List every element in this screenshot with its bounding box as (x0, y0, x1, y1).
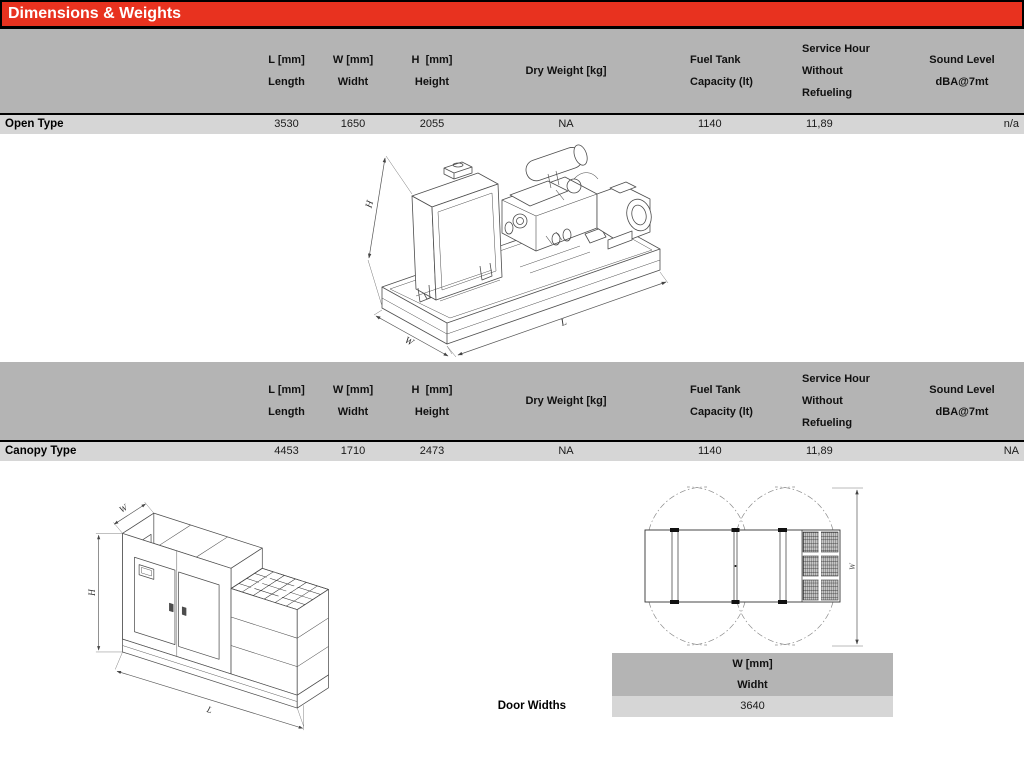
open-service-hour: 11,89 (790, 115, 900, 134)
header-blank (0, 29, 253, 113)
header-height: H [mm]Height (386, 29, 478, 113)
door-widths-label: Door Widths (420, 696, 566, 717)
open-width: 1650 (320, 115, 386, 134)
header-length: L [mm]Length (253, 362, 320, 440)
header-service-hour: Service HourWithoutRefueling (790, 362, 900, 440)
canopy-fuel-tank: 1140 (654, 442, 790, 461)
canopy-type-drawing: H W L (72, 478, 334, 734)
header-dry-weight: Dry Weight [kg] (478, 29, 654, 113)
canopy-width: 1710 (320, 442, 386, 461)
header-service-hour: Service HourWithoutRefueling (790, 29, 900, 113)
header-height: H [mm]Height (386, 362, 478, 440)
canopy-dry-weight: NA (478, 442, 654, 461)
open-type-drawing: H L W (360, 138, 680, 362)
dim-label-h: H (363, 199, 376, 211)
section-title-bar: Dimensions & Weights (0, 0, 1024, 29)
dim-label-l: L (205, 704, 214, 715)
canopy-length: 4453 (253, 442, 320, 461)
header-fuel-tank: Fuel TankCapacity (lt) (654, 29, 790, 113)
door-widths-value: 3640 (612, 696, 893, 717)
header-fuel-tank: Fuel TankCapacity (lt) (654, 362, 790, 440)
dimensions-weights-sheet: Dimensions & Weights L [mm]Length W [mm]… (0, 0, 1024, 776)
row-label: Open Type (0, 115, 253, 134)
table-row-open-type: Open Type 3530 1650 2055 NA 1140 11,89 n… (0, 115, 1024, 134)
header-dry-weight: Dry Weight [kg] (478, 362, 654, 440)
header-blank (0, 362, 253, 440)
dim-label-w: W (848, 562, 857, 570)
door-swing-plan-drawing: W (635, 482, 880, 662)
open-sound-level: n/a (900, 115, 1024, 134)
open-type-table-header: L [mm]Length W [mm]Widht H [mm]Height Dr… (0, 29, 1024, 113)
door-widths-header: W [mm] Widht (612, 653, 893, 696)
open-height: 2055 (386, 115, 478, 134)
header-width: W [mm]Widht (320, 29, 386, 113)
dim-label-l: L (558, 316, 568, 329)
header-sound-level: Sound LeveldBA@7mt (900, 29, 1024, 113)
open-dry-weight: NA (478, 115, 654, 134)
header-width: W [mm]Widht (320, 362, 386, 440)
page-title: Dimensions & Weights (8, 5, 181, 22)
table-row-canopy-type: Canopy Type 4453 1710 2473 NA 1140 11,89… (0, 442, 1024, 461)
row-label: Canopy Type (0, 442, 253, 461)
header-sound-level: Sound LeveldBA@7mt (900, 362, 1024, 440)
open-length: 3530 (253, 115, 320, 134)
dim-label-w: W (117, 502, 130, 515)
header-length: L [mm]Length (253, 29, 320, 113)
open-fuel-tank: 1140 (654, 115, 790, 134)
dim-label-h: H (87, 588, 97, 597)
canopy-height: 2473 (386, 442, 478, 461)
canopy-type-table-header: L [mm]Length W [mm]Widht H [mm]Height Dr… (0, 362, 1024, 440)
canopy-sound-level: NA (900, 442, 1024, 461)
canopy-service-hour: 11,89 (790, 442, 900, 461)
